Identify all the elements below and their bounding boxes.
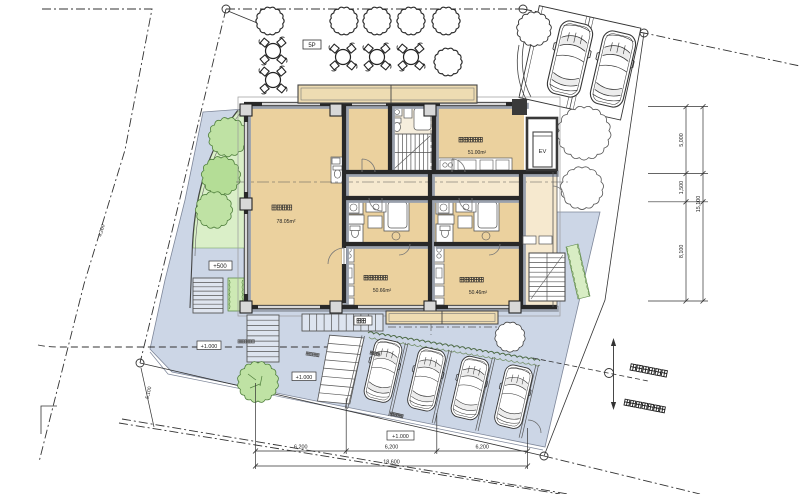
svg-text:+1.000: +1.000 [201,344,218,350]
svg-text:18,600: 18,600 [383,460,400,466]
svg-text:15,100: 15,100 [696,196,702,213]
svg-text:EV: EV [539,149,547,155]
svg-text:50.46m²: 50.46m² [469,290,488,296]
svg-text:1,500: 1,500 [679,181,685,195]
svg-text:5,000: 5,000 [679,133,685,147]
svg-text:6,200: 6,200 [475,445,489,451]
svg-text:8,100: 8,100 [679,245,685,259]
svg-text:78.05m²: 78.05m² [276,219,295,225]
svg-text:5P: 5P [308,43,315,49]
svg-text:+1.000: +1.000 [296,375,313,381]
svg-text:51.00m²: 51.00m² [468,150,487,156]
svg-text:+1.000: +1.000 [392,434,409,440]
svg-text:6,200: 6,200 [294,445,308,451]
svg-text:6,200: 6,200 [385,445,399,451]
svg-text:+500: +500 [213,264,227,270]
svg-text:50.66m²: 50.66m² [373,288,392,294]
